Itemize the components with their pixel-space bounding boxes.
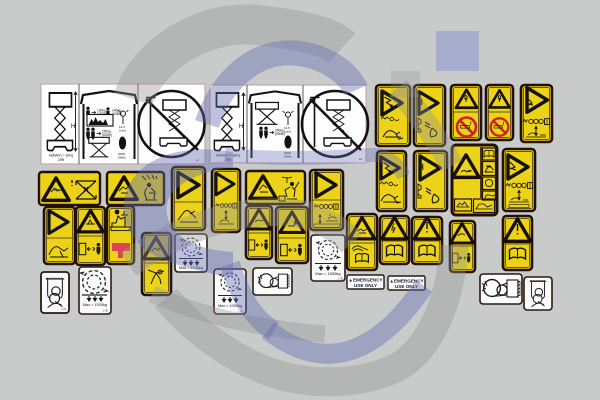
svg-text:L-31: L-31 (61, 307, 67, 311)
svg-text:Max = 1000kg: Max = 1000kg (315, 271, 340, 276)
svg-text:(m/s): (m/s) (284, 129, 291, 133)
svg-text:Max = 1000kg: Max = 1000kg (83, 303, 107, 307)
svg-text:H: H (239, 124, 243, 130)
svg-text:(m/s): (m/s) (119, 128, 126, 132)
svg-text:L-30: L-30 (103, 309, 109, 313)
svg-text:(551lb): (551lb) (102, 133, 112, 137)
svg-text:H: H (71, 124, 75, 130)
svg-text:29ft: 29ft (58, 158, 64, 162)
svg-text:USE ONLY: USE ONLY (354, 283, 377, 288)
svg-text:▲EMERGENCY: ▲EMERGENCY (348, 278, 382, 283)
svg-text:(90lb): (90lb) (118, 155, 126, 159)
svg-text:L-30: L-30 (338, 277, 344, 281)
